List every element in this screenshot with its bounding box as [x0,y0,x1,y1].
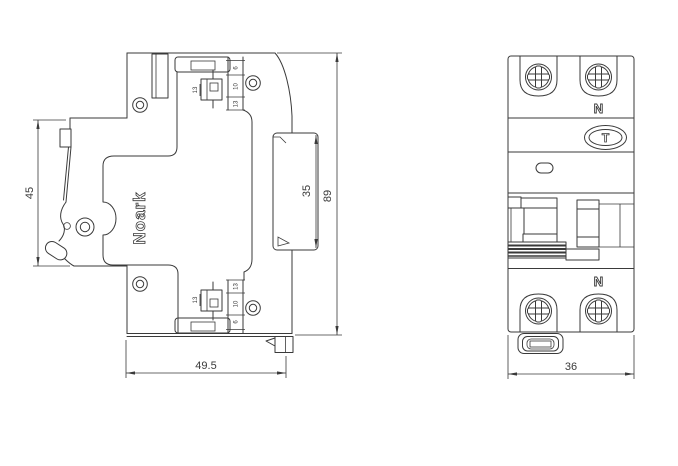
callout-top-6: 6 [234,66,240,70]
rivet-top-right [246,76,261,91]
side-view-outline [43,53,292,337]
rivet-top-left [133,98,148,113]
callout-top-13: 13 [234,100,240,107]
side-top-slot [152,54,168,98]
neutral-label-bottom: N [594,274,603,289]
callout-bottom-6: 6 [234,320,240,324]
toggle-handle-assembly [508,197,634,260]
rivet-bottom-right [246,301,261,316]
dim-35-label: 35 [301,185,313,197]
trip-indicator-window [536,163,553,173]
din-clip-side [266,337,293,353]
clamp-callout-bottom: 13 [193,296,199,303]
dim-89-label: 89 [322,190,334,202]
dim-45-label: 45 [24,187,36,199]
terminal-depth-strip-bottom: 13 10 6 [226,280,245,333]
neutral-label-top: N [594,101,603,116]
test-button-label: T [602,131,610,145]
dim-49-5-label: 49.5 [195,360,216,372]
front-view: N T N [508,56,634,379]
side-view: 6 10 13 13 [24,53,342,378]
callout-bottom-10: 10 [234,300,240,307]
clamp-callout-top: 13 [193,86,199,93]
noark-logo: Noark [130,191,149,244]
terminal-clamp-symbol-bottom: 13 [193,282,222,320]
callout-top-10: 10 [234,83,240,90]
terminal-clamp-symbol-top: 13 [193,70,222,108]
breaker-dimensional-drawing: 6 10 13 13 [0,0,678,466]
test-button: T [585,126,627,150]
phillips-screw-top-right-icon [586,64,612,90]
phillips-screw-bottom-right-icon [586,298,612,324]
front-body-outline [508,56,634,332]
callout-bottom-13: 13 [234,283,240,290]
rivet-lever-pivot [64,218,94,236]
drawing-svg: 6 10 13 13 [0,0,678,466]
toggle-side-tab [60,129,71,147]
dimension-35: 35 [301,135,318,248]
phillips-screw-bottom-left-icon [526,298,552,324]
din-clip-front [518,334,563,354]
rivet-bottom-left [133,277,148,292]
side-inner-outline [103,72,252,334]
dim-36-label: 36 [565,361,577,373]
dimension-49-5: 49.5 [126,340,286,378]
side-terminal-cover-top [175,57,230,72]
phillips-screw-top-left-icon [526,64,552,90]
side-terminal-cover-bottom [175,318,230,333]
terminal-depth-strip-top: 6 10 13 [226,57,245,110]
